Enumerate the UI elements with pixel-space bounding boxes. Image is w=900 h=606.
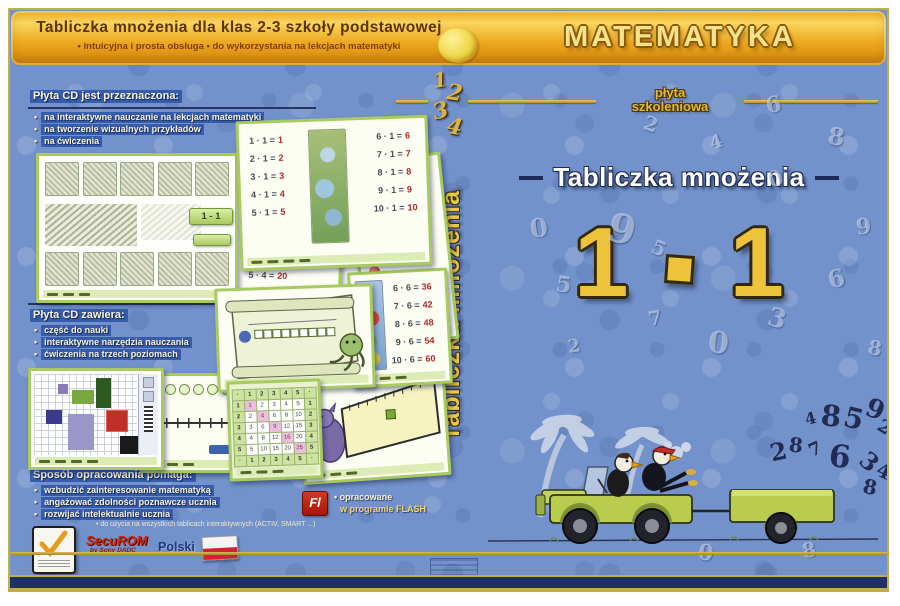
table-cell: 1 <box>232 401 244 412</box>
bullet-item: •rozwijać intelektualnie ucznia <box>34 509 173 519</box>
thumbnail <box>45 162 79 196</box>
list-item: 8 <box>826 121 847 152</box>
gold-rule <box>468 100 596 103</box>
table-cell: 2 <box>258 455 270 466</box>
bullet-item: •wzbudzić zainteresowanie matematyką <box>34 485 214 495</box>
list-item: 1 · 1 = <box>249 131 275 150</box>
list-item: 8 <box>788 432 804 457</box>
table-cell: 4 <box>256 411 268 422</box>
bullet-item: •część do nauki <box>34 325 111 335</box>
thumbnail-row <box>45 252 229 286</box>
title-dash <box>519 176 543 180</box>
list-item: 4 <box>279 185 285 203</box>
list-item: 10 · 6 = <box>391 350 423 370</box>
paint-toolbar <box>138 374 158 455</box>
list-item: 8 · 6 = <box>389 314 421 334</box>
table-cell: 16 <box>281 432 293 443</box>
table-cell: · <box>306 453 318 464</box>
thumbnail <box>195 252 229 286</box>
section2-heading: Płyta CD zawiera: <box>30 309 128 321</box>
table-cell: 1 <box>304 398 316 409</box>
table-cell: 8 <box>280 410 292 421</box>
list-item: 4 <box>803 408 819 429</box>
spine-deco-numbers: 1234 <box>425 70 475 144</box>
cd-cover: Tabliczka mnożenia dla klas 2-3 szkoły p… <box>8 8 889 592</box>
brand-matematyka: MATEMATYKA <box>481 21 879 54</box>
table-cell: 4 <box>280 388 292 399</box>
list-item: 60 <box>425 349 436 367</box>
list-item: 2 <box>278 149 284 167</box>
list-item: 2 <box>445 79 464 107</box>
list-item: 6 · 1 = <box>371 127 402 146</box>
list-item: 2 <box>567 335 582 358</box>
list-item: 4 <box>707 131 725 155</box>
thumbnail-row <box>45 162 229 196</box>
flash-note-line1: • opracowane <box>334 492 392 502</box>
thumbnail <box>45 252 79 286</box>
list-item: 7 <box>805 437 825 461</box>
list-item: 8 <box>861 474 880 500</box>
list-item: 8 · 1 = <box>372 163 403 182</box>
screenshot-scroll-numberline <box>214 283 376 392</box>
table-cell: 12 <box>281 421 293 432</box>
table-cell: 8 <box>257 433 269 444</box>
list-item: 9 · 6 = <box>390 332 422 352</box>
list-item: 6 · 6 = <box>387 278 419 298</box>
table-cell: 10 <box>257 444 269 455</box>
page: { "header": { "title": "Tabliczka mnożen… <box>0 0 900 606</box>
table-cell: 3 <box>245 422 257 433</box>
list-item: 2 <box>640 110 661 137</box>
table-cell: 2 <box>244 411 256 422</box>
toolbar-strip <box>43 290 231 298</box>
list-item: 10 · 1 = <box>373 199 404 218</box>
poland-flag-icon <box>201 535 238 561</box>
list-item: 6 <box>763 91 783 120</box>
screenshot-times1-table: 1 · 1 =2 · 1 =3 · 1 =4 · 1 =5 · 1 = 1234… <box>235 115 432 272</box>
table-cell: 15 <box>269 443 281 454</box>
list-item: 36 <box>421 277 432 295</box>
disc-type-label: płyta szkoleniowa <box>596 86 744 114</box>
list-item: 9 <box>855 213 873 240</box>
table-cell: 1 <box>246 455 258 466</box>
table-cell: 4 <box>282 454 294 465</box>
jeep-sketch <box>45 204 137 246</box>
bottom-navy-strip <box>10 575 887 590</box>
table-cell: 20 <box>281 443 293 454</box>
table-cell: 2 <box>232 412 244 423</box>
list-item: 2 · 1 = <box>249 149 275 168</box>
bullet-item: •ćwiczenia na trzech poziomach <box>34 349 181 359</box>
table-cell: 1 <box>244 400 256 411</box>
table-cell: 3 <box>233 423 245 434</box>
list-item: 4 <box>445 113 465 141</box>
disc-dot-icon <box>438 28 478 63</box>
table-cell: 3 <box>305 420 317 431</box>
multiplication-dot <box>664 254 695 285</box>
list-item: 4 · 1 = <box>251 185 277 204</box>
equation-list: 1 · 1 =2 · 1 =3 · 1 =4 · 1 =5 · 1 = 1234… <box>249 131 287 246</box>
table-cell: 2 <box>256 400 268 411</box>
table-cell: 4 <box>245 433 257 444</box>
table-cell: 6 <box>257 422 269 433</box>
heading-underline <box>28 107 316 109</box>
small-button <box>193 234 231 246</box>
table-cell: 4 <box>305 431 317 442</box>
screenshot-picture-selection: 1 - 1 <box>36 153 238 303</box>
thumbnail <box>83 252 117 286</box>
table-cell: 3 <box>268 388 280 399</box>
list-item: 9 · 1 = <box>373 181 404 200</box>
table-cell: 12 <box>269 432 281 443</box>
toolbar-strip <box>35 457 157 465</box>
table-cell: 5 <box>294 453 306 464</box>
thumbnail <box>158 162 192 196</box>
flying-numbers: 485922876348 <box>765 403 889 507</box>
screenshot-pythagoras-table: ·12345·112345122468102336912153448121620… <box>226 378 323 481</box>
list-item: 7 · 1 = <box>372 145 403 164</box>
dragon-illustration <box>308 129 350 244</box>
interactive-boards-footnote: • do użycia na wszystkich tablicach inte… <box>96 521 315 528</box>
list-item: 42 <box>422 295 433 313</box>
list-item: 8 <box>819 398 843 434</box>
table-cell: 10 <box>292 409 304 420</box>
table-cell: 5 <box>245 444 257 455</box>
table-cell: 5 <box>233 445 245 456</box>
table-cell: 4 <box>233 434 245 445</box>
screenshot-grid-paint <box>28 368 164 470</box>
section1-heading: Płyta CD jest przeznaczona: <box>30 90 182 102</box>
paint-canvas <box>34 374 137 455</box>
table-cell: 2 <box>304 409 316 420</box>
table-cell: 25 <box>293 442 305 453</box>
toolbar-strip <box>236 466 316 477</box>
list-item: 8 <box>866 335 884 361</box>
front-title: Tabliczka mnożenia <box>478 162 880 193</box>
multiplication-grid: ·12345·112345122468102336912153448121620… <box>231 387 319 468</box>
list-item: 3 · 1 = <box>250 167 276 186</box>
list-item: 10 <box>407 198 418 216</box>
flash-note-line2: w programie FLASH <box>340 504 426 514</box>
top-banner: Tabliczka mnożenia dla klas 2-3 szkoły p… <box>11 11 886 65</box>
flash-icon: Fl <box>302 491 328 516</box>
table-cell: 3 <box>270 454 282 465</box>
list-item: 2 <box>767 436 789 468</box>
ground-line <box>488 539 878 541</box>
list-item: 3 <box>279 167 285 185</box>
table-cell: 5 <box>292 398 304 409</box>
toolbar-strip <box>247 252 425 266</box>
digit-b: 1 <box>730 212 785 312</box>
fact-label-button: 1 - 1 <box>189 208 233 225</box>
list-item: 7 <box>405 144 416 162</box>
whiteboard-approved-icon <box>32 526 76 574</box>
list-item: 7 · 6 = <box>388 296 420 316</box>
table-cell: 2 <box>256 389 268 400</box>
list-item: 48 <box>423 313 434 331</box>
thumbnail <box>83 162 117 196</box>
thumbnail <box>158 252 192 286</box>
title-dash <box>815 176 839 180</box>
list-item: 54 <box>424 331 435 349</box>
passenger-character <box>642 447 698 491</box>
equation-list: 6 · 6 =7 · 6 =8 · 6 =9 · 6 =10 · 6 = 364… <box>387 277 435 369</box>
list-item: 0 <box>706 325 730 362</box>
list-item: 5 <box>280 203 286 221</box>
table-cell: 6 <box>268 410 280 421</box>
list-item: 8 <box>406 162 417 180</box>
table-cell: · <box>304 387 316 398</box>
cover-subtitle: • intuicyjna i prosta obsługa • do wykor… <box>27 41 451 52</box>
securom-logo: SecuROM <box>86 533 147 548</box>
bullet-item: •interaktywne narzędzia nauczania <box>34 337 192 347</box>
logo-fineprint <box>38 560 70 569</box>
thumbnail <box>120 162 154 196</box>
bullet-item: •na ćwiczenia <box>34 136 102 146</box>
table-cell: 20 <box>293 431 305 442</box>
gold-rule <box>396 100 428 103</box>
bullet-item: •na tworzenie wizualnych przykładów <box>34 124 204 134</box>
table-cell: 3 <box>268 399 280 410</box>
table-cell: · <box>232 390 244 401</box>
table-cell: · <box>234 456 246 467</box>
equation-list: 6 · 1 =7 · 1 =8 · 1 =9 · 1 =10 · 1 = 678… <box>371 126 419 241</box>
table-cell: 5 <box>292 387 304 398</box>
list-item: 5 · 1 = <box>251 203 277 222</box>
list-item: 1 <box>431 67 449 93</box>
bullet-item: •na interaktywne nauczanie na lekcjach m… <box>34 112 264 122</box>
list-item: 6 <box>827 438 852 476</box>
bullet-item: •angażować zdolności poznawcze ucznia <box>34 497 220 507</box>
list-item: 6 <box>405 126 416 144</box>
table-cell: 15 <box>293 420 305 431</box>
table-cell: 4 <box>280 399 292 410</box>
cover-title: Tabliczka mnożenia dla klas 2-3 szkoły p… <box>27 19 451 37</box>
thumbnail <box>195 162 229 196</box>
table-cell: 5 <box>305 442 317 453</box>
table-cell: 1 <box>244 389 256 400</box>
list-item: 1 <box>278 131 284 149</box>
table-cell: 9 <box>269 421 281 432</box>
thumbnail <box>120 252 154 286</box>
list-item: 9 <box>407 180 418 198</box>
